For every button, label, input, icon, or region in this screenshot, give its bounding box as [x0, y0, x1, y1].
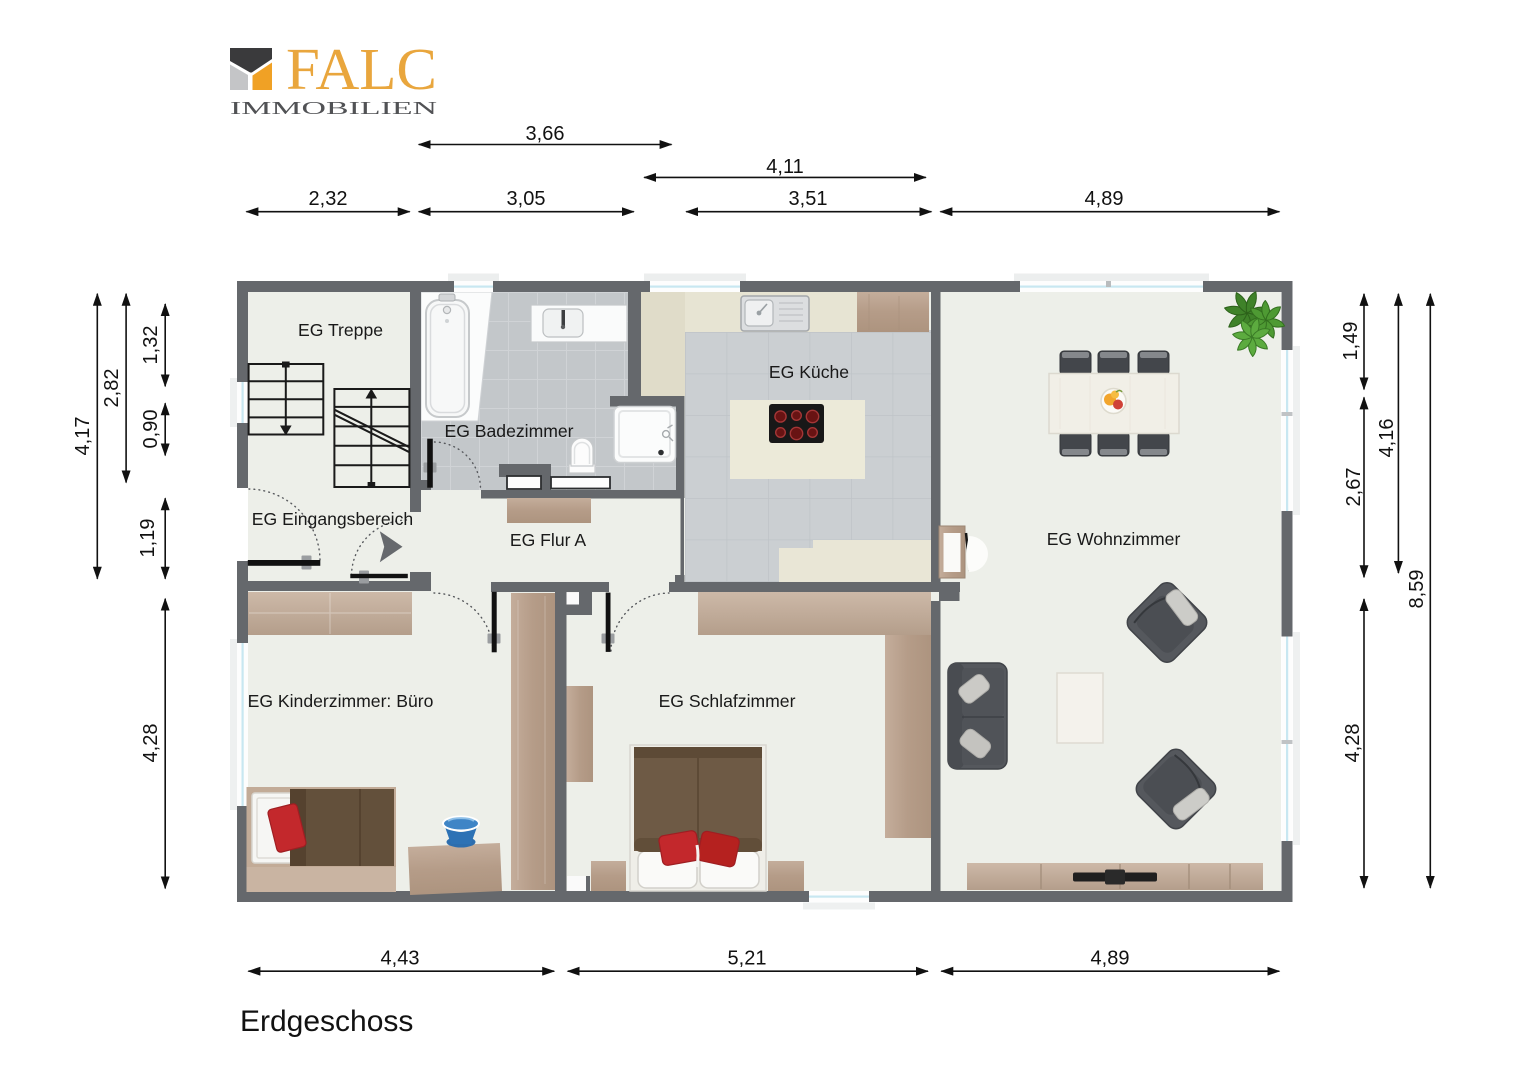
svg-text:EG Badezimmer: EG Badezimmer — [444, 421, 573, 441]
svg-text:Erdgeschoss: Erdgeschoss — [240, 1005, 413, 1038]
svg-text:IMMOBILIEN: IMMOBILIEN — [230, 98, 437, 118]
svg-text:4,16: 4,16 — [1376, 419, 1398, 458]
svg-text:3,66: 3,66 — [526, 123, 565, 145]
svg-text:EG Küche: EG Küche — [769, 362, 849, 382]
svg-text:4,17: 4,17 — [72, 417, 94, 456]
svg-text:FALC: FALC — [286, 36, 437, 102]
svg-text:0,90: 0,90 — [140, 410, 162, 449]
svg-text:1,19: 1,19 — [137, 519, 159, 558]
svg-text:3,05: 3,05 — [507, 188, 546, 210]
svg-text:EG Wohnzimmer: EG Wohnzimmer — [1047, 529, 1181, 549]
svg-text:4,89: 4,89 — [1091, 948, 1130, 970]
svg-text:EG Flur A: EG Flur A — [510, 530, 587, 550]
svg-text:EG Schlafzimmer: EG Schlafzimmer — [659, 691, 796, 711]
svg-text:EG Treppe: EG Treppe — [298, 320, 383, 340]
svg-text:4,11: 4,11 — [766, 156, 803, 178]
svg-text:1,49: 1,49 — [1340, 322, 1362, 361]
svg-text:4,28: 4,28 — [140, 724, 162, 763]
svg-text:3,51: 3,51 — [789, 188, 828, 210]
svg-text:4,89: 4,89 — [1085, 188, 1124, 210]
svg-text:EG Eingangsbereich: EG Eingangsbereich — [252, 509, 413, 529]
svg-text:4,43: 4,43 — [381, 948, 420, 970]
svg-text:2,67: 2,67 — [1343, 468, 1365, 507]
svg-text:8,59: 8,59 — [1406, 570, 1428, 609]
svg-text:5,21: 5,21 — [728, 948, 767, 970]
svg-text:2,32: 2,32 — [309, 188, 348, 210]
svg-text:1,32: 1,32 — [140, 326, 162, 365]
svg-text:4,28: 4,28 — [1342, 724, 1364, 763]
svg-text:2,82: 2,82 — [101, 369, 123, 408]
svg-text:EG Kinderzimmer: Büro: EG Kinderzimmer: Büro — [248, 691, 434, 711]
